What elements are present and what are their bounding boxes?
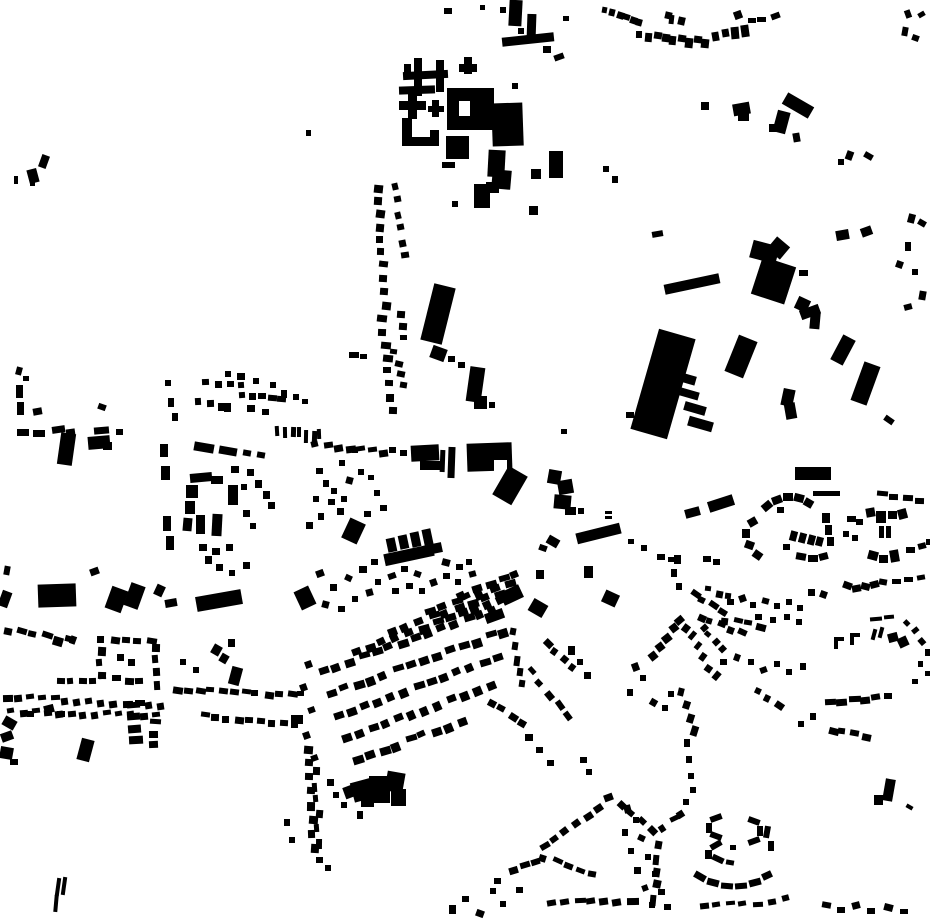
building [302,399,308,404]
building [926,539,930,545]
building [709,831,722,841]
building [886,526,891,538]
building [432,700,443,711]
building [318,666,330,676]
building [500,7,506,13]
building [757,826,763,836]
building [671,569,677,577]
building [0,590,12,608]
building [900,909,908,914]
building [382,354,393,362]
building [442,723,453,734]
building [245,716,253,722]
building [852,535,858,541]
building [338,683,349,692]
building [127,701,141,708]
building [200,711,210,718]
building [313,823,319,831]
building [918,661,923,667]
building [251,690,258,696]
building [652,867,660,877]
building [756,622,767,631]
building [410,633,422,643]
building [185,501,195,514]
building [89,678,96,684]
building [85,697,93,704]
building [685,713,694,724]
building [711,31,719,41]
building [662,705,668,711]
building [491,102,523,146]
building [492,466,528,506]
building [317,429,321,440]
building [14,176,18,184]
building [768,841,774,851]
building [871,629,878,641]
building [381,302,391,311]
building [800,663,806,670]
building [387,572,397,580]
building [578,508,584,514]
building [234,717,244,725]
building [172,413,178,421]
building [622,829,628,836]
building [724,335,757,379]
building [897,508,908,520]
building [560,654,570,664]
building [783,493,793,501]
building [1,715,17,730]
building [98,647,107,656]
building [915,498,924,504]
building [76,738,94,763]
building [668,691,674,697]
building [645,854,651,860]
building [127,725,141,734]
building [97,636,104,643]
building [717,644,726,653]
building [429,345,448,362]
building [902,619,910,627]
building [426,676,438,685]
building [230,688,240,695]
building [302,731,311,740]
building [593,803,604,814]
building [392,588,399,594]
building [925,671,930,676]
building [313,767,320,775]
building [151,655,158,663]
building [380,287,389,295]
building [17,402,24,415]
building [827,537,834,546]
building [457,716,468,726]
building [676,583,682,590]
building [31,708,40,714]
building [634,867,641,874]
building [528,598,549,618]
building [368,447,378,453]
building [464,663,475,673]
building [468,570,476,578]
building [757,17,766,22]
building [250,523,256,529]
building [313,496,319,502]
building [378,329,387,337]
building [451,667,461,677]
building [397,638,409,649]
building [711,854,724,865]
building [180,659,186,665]
building [712,671,722,681]
building [258,393,266,399]
building [588,870,597,877]
building [90,712,98,720]
building [735,882,747,889]
building [878,627,885,639]
building [195,589,243,612]
building [664,273,721,294]
building [95,659,102,667]
building [682,700,691,710]
building [849,696,861,702]
building [413,570,422,578]
building [883,903,894,912]
building [135,678,143,684]
building [574,897,586,903]
building [747,816,760,826]
building [247,405,255,412]
building [747,836,760,846]
building [815,536,824,547]
building [774,603,780,609]
building [312,794,318,801]
building [389,447,396,453]
building [212,548,220,555]
building [845,150,855,161]
building [553,52,564,61]
building [904,9,912,19]
building [377,670,388,681]
building [419,705,430,716]
building [626,808,635,817]
building [907,213,916,224]
building [809,313,820,330]
building [38,583,77,607]
building [262,409,269,415]
building [117,654,124,661]
building [168,398,174,407]
building [525,734,533,741]
building [211,514,222,536]
building [770,12,781,21]
building [905,242,911,251]
building [693,870,707,882]
building [237,373,245,380]
building [398,239,406,247]
building [925,649,930,656]
building [327,779,334,786]
building [568,646,575,655]
building [411,444,440,461]
building [114,710,122,716]
building [405,659,417,669]
building [291,721,298,728]
building [379,719,390,729]
building [704,664,714,674]
building [341,517,366,544]
building [382,642,392,652]
building [547,760,554,766]
building [647,650,658,661]
building [763,694,772,703]
building [153,584,166,598]
building [241,688,251,695]
building [652,230,664,238]
building [368,475,374,480]
building [270,382,276,388]
building [231,466,239,473]
building [789,530,798,541]
building [227,381,234,387]
building [892,579,901,584]
building [207,400,214,408]
building [687,416,714,433]
building [400,450,407,456]
building [549,151,563,178]
building [354,729,365,740]
building [698,652,707,662]
building [688,773,694,779]
building [216,564,223,571]
building [683,799,689,805]
building [669,36,677,46]
building [255,480,262,488]
building [557,479,574,495]
building [0,746,14,760]
building [394,196,402,203]
building [57,432,76,466]
building [211,714,219,721]
building [584,566,593,578]
building [160,444,168,457]
building [436,60,444,92]
building [418,655,430,665]
building [61,698,69,706]
building [631,662,640,672]
building [519,679,526,687]
building [103,442,112,450]
building [432,100,439,117]
building [727,599,734,605]
building [312,782,318,791]
building [316,857,323,863]
building [408,91,417,119]
building [462,896,469,902]
building [677,688,685,697]
building [497,704,507,713]
building [903,303,912,311]
building [275,426,279,436]
building [430,130,439,139]
building [456,564,463,570]
building [686,756,692,763]
building [447,447,455,478]
building [895,260,904,269]
building [737,628,747,637]
building [51,695,60,701]
building [822,513,830,523]
building [510,627,518,635]
building [649,895,656,906]
building [28,630,38,638]
building [917,637,926,647]
building [228,639,235,647]
building [443,573,450,579]
building [563,862,573,870]
building [37,694,46,700]
building [747,516,759,527]
building [205,556,212,564]
building [150,718,161,724]
building [243,449,252,456]
building [307,706,316,714]
building [334,444,344,453]
building [398,534,410,550]
building [502,32,555,46]
building [684,506,701,519]
building [703,556,711,562]
building [561,429,567,434]
building [389,406,398,413]
building [330,663,342,674]
building [851,901,861,910]
building [431,542,443,554]
building [153,668,160,677]
building [627,898,639,905]
building [249,393,256,400]
building [575,523,621,545]
building [218,445,237,456]
building [358,651,370,660]
building [338,606,345,612]
building [799,270,808,276]
building [377,315,388,323]
building [902,495,912,501]
building [431,726,443,737]
building [850,635,854,645]
building [23,376,29,381]
building [870,616,882,621]
building [316,810,324,819]
building [701,102,709,110]
building [325,865,331,871]
building [392,664,404,673]
building [10,759,18,765]
building [636,31,642,38]
building [748,659,754,665]
building [368,723,380,733]
building [912,679,918,684]
building [912,269,918,275]
building [444,8,452,14]
building [516,667,522,676]
building [211,476,223,484]
building [889,549,900,562]
building [769,124,776,132]
building [422,629,433,640]
building [512,83,518,89]
building [754,687,762,695]
building [904,577,913,582]
building [3,695,13,702]
building [289,837,295,843]
building [721,882,733,889]
building [94,426,110,434]
building [380,505,387,511]
building [458,362,465,368]
building [243,562,250,569]
building [859,696,870,704]
building [307,802,315,811]
building [441,558,451,567]
building [705,585,712,591]
building [601,6,607,13]
building [697,595,706,604]
building [861,733,871,742]
building [97,699,105,707]
building [397,371,406,378]
building [877,490,888,496]
building [584,672,591,679]
building [333,792,339,798]
building [193,667,199,673]
building [679,388,699,401]
building [361,795,374,807]
building [884,615,894,620]
building [376,210,386,219]
building [464,57,472,74]
building [511,642,518,651]
building [98,674,105,680]
building [755,614,762,620]
building [494,460,507,471]
building [838,728,846,734]
building [394,211,402,219]
building [497,628,509,639]
building [247,469,254,476]
building [326,688,338,698]
building [452,201,458,207]
building [860,225,873,237]
building [385,692,396,703]
building [520,861,531,869]
building [784,402,798,420]
building [357,811,363,819]
building [391,183,399,191]
building [867,550,879,561]
building [121,637,129,644]
building [703,630,711,638]
building [637,834,646,842]
building [810,713,816,720]
building [514,656,521,666]
building [752,902,762,908]
building [654,641,665,652]
building [401,252,410,259]
building [190,472,213,483]
building [576,866,586,874]
